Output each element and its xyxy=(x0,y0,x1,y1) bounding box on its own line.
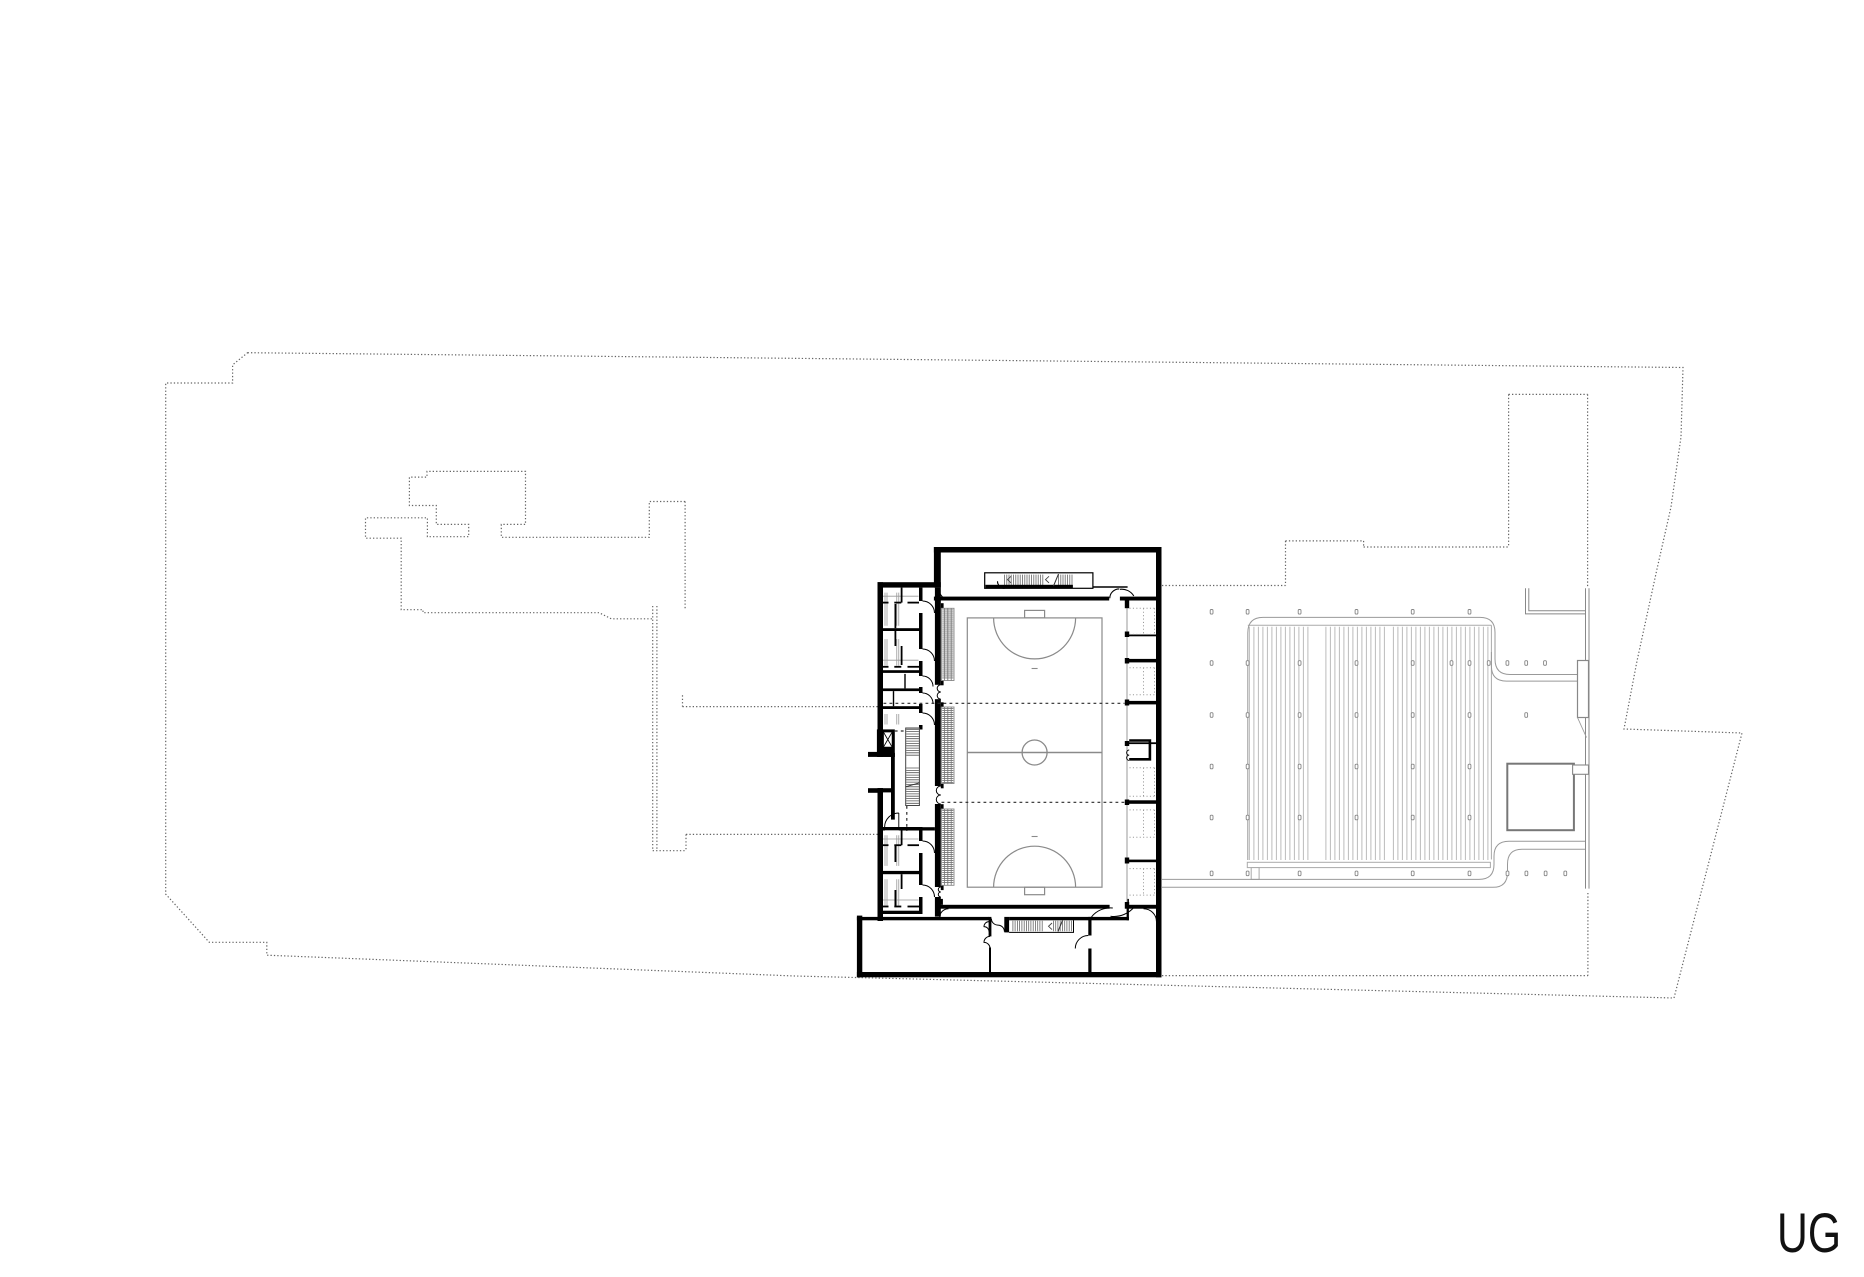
svg-text:UG: UG xyxy=(1777,1202,1841,1264)
